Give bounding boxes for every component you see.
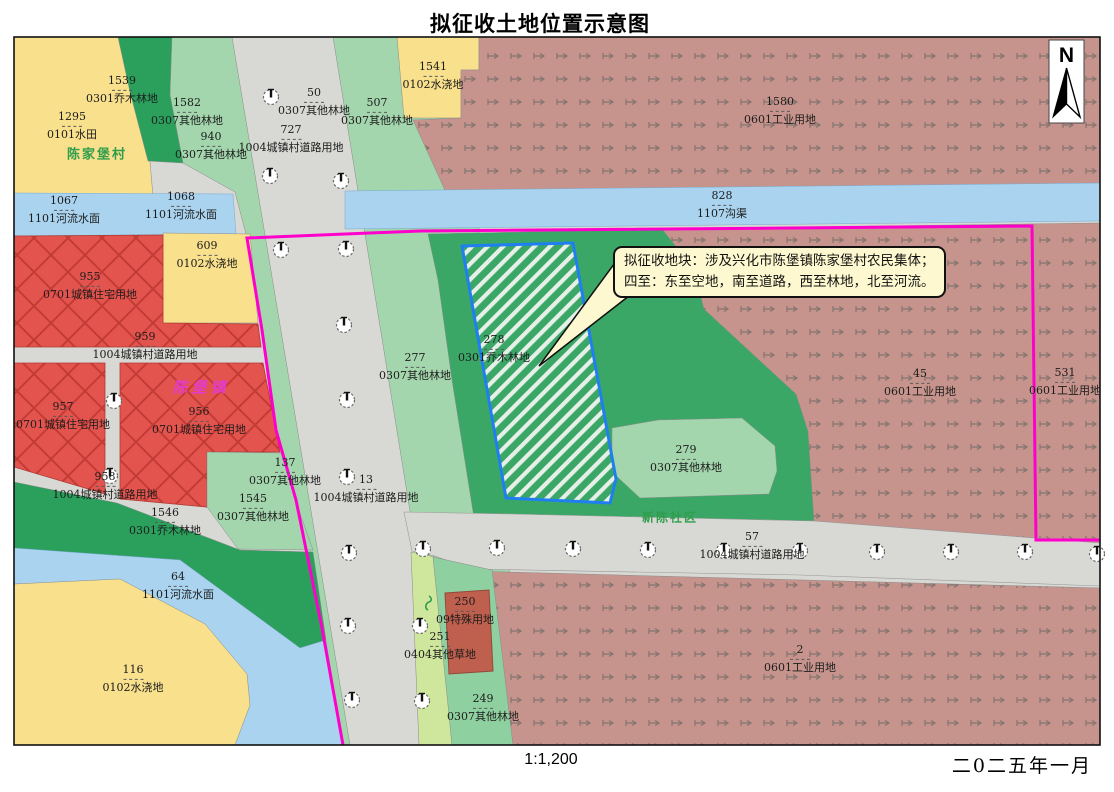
street-lamp-icon — [340, 470, 355, 485]
map-scale: 1:1,200 — [524, 751, 577, 769]
parcel-irrigated-609 — [163, 233, 258, 323]
north-label: N — [1059, 44, 1074, 67]
street-lamp-icon — [717, 544, 732, 559]
street-lamp-icon — [334, 174, 349, 189]
callout-line2: 四至：东至空地，南至道路，西至林地，北至河流。 — [624, 272, 935, 293]
parcel-special-250 — [445, 590, 493, 674]
street-lamp-icon — [342, 546, 357, 561]
parcel-industrial-2 — [470, 571, 1100, 745]
street-lamp-icon — [870, 545, 885, 560]
north-arrow: N — [1049, 40, 1084, 123]
acquisition-callout: 拟征收地块：涉及兴化市陈堡镇陈家堡村农民集体； 四至：东至空地，南至道路，西至林… — [613, 246, 946, 298]
street-lamp-icon — [793, 544, 808, 559]
street-lamp-icon — [1090, 547, 1105, 562]
street-lamp-icon — [416, 542, 431, 557]
street-lamp-icon — [345, 693, 360, 708]
street-lamp-icon — [274, 243, 289, 258]
street-lamp-icon — [490, 541, 505, 556]
street-lamp-icon — [340, 393, 355, 408]
map-canvas: N — [0, 0, 1114, 792]
street-lamp-icon — [107, 394, 122, 409]
street-lamp-icon — [337, 318, 352, 333]
parcel-river-west — [14, 193, 236, 236]
street-lamp-icon — [263, 169, 278, 184]
parcel-industrial-1580 — [413, 37, 1100, 197]
street-lamp-icon — [415, 694, 430, 709]
parcel-forest-279 — [612, 418, 777, 498]
street-lamp-icon — [1018, 545, 1033, 560]
callout-line1: 拟征收地块：涉及兴化市陈堡镇陈家堡村农民集体； — [624, 251, 935, 272]
street-lamp-icon — [341, 619, 356, 634]
parcel-ditch-828 — [345, 183, 1100, 229]
map-date: 二0二五年一月 — [952, 751, 1092, 778]
street-lamp-icon — [413, 619, 428, 634]
street-lamp-icon — [641, 543, 656, 558]
street-lamp-icon — [103, 469, 118, 484]
street-lamp-icon — [566, 542, 581, 557]
street-lamp-icon — [944, 545, 959, 560]
land-acquisition-map-page: 拟征收土地位置示意图 — [0, 0, 1114, 792]
street-lamp-icon — [264, 90, 279, 105]
street-lamp-icon — [339, 242, 354, 257]
